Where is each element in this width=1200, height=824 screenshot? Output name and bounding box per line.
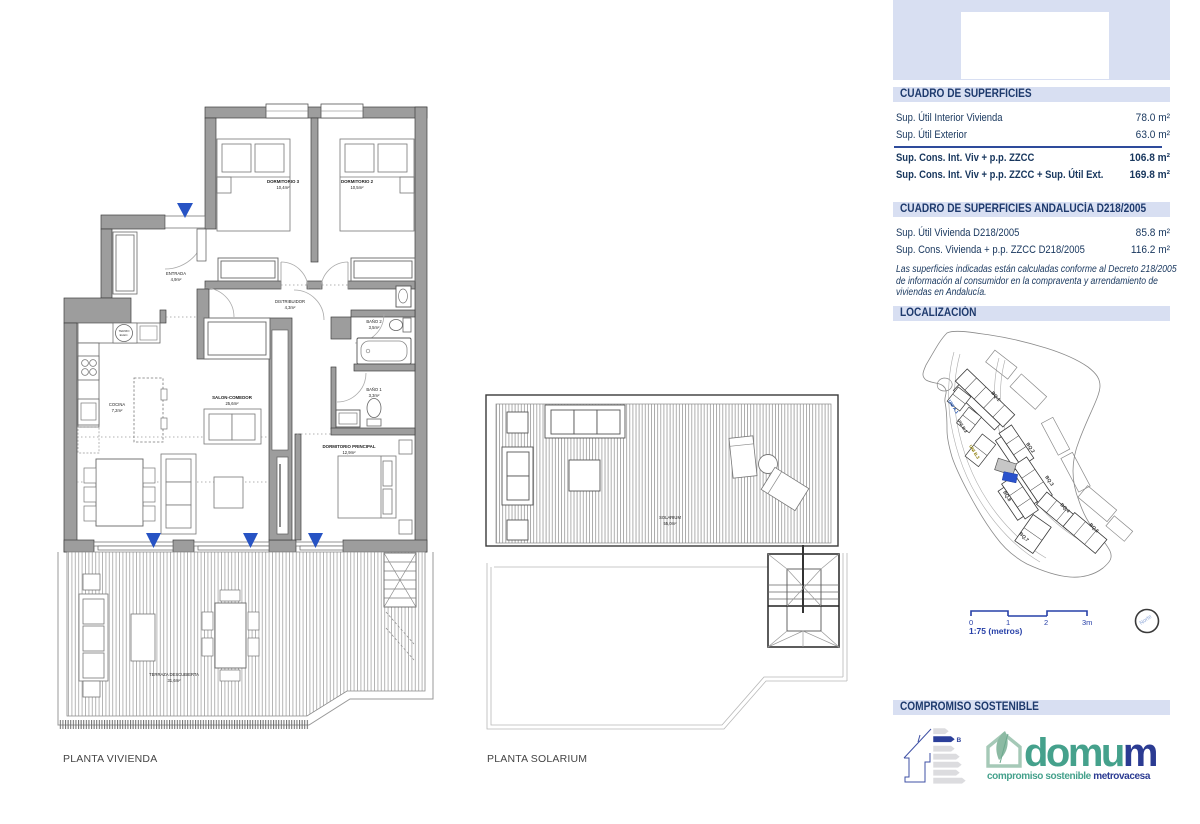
svg-text:10,4m²: 10,4m² — [276, 185, 290, 190]
svg-text:DISTRIBUIDOR: DISTRIBUIDOR — [275, 299, 305, 304]
svg-text:compromiso sostenible metrovac: compromiso sostenible metrovacesa — [987, 771, 1151, 782]
svg-text:4,3m²: 4,3m² — [285, 305, 296, 310]
svg-text:4,9m²: 4,9m² — [171, 277, 182, 282]
svg-text:BAÑO 1: BAÑO 1 — [366, 387, 382, 392]
svg-text:10,5m²: 10,5m² — [350, 185, 364, 190]
svg-text:12,9m²: 12,9m² — [342, 450, 356, 455]
svg-text:SOLARIUM: SOLARIUM — [659, 515, 681, 520]
svg-text:TERRAZA DESCUBIERTA: TERRAZA DESCUBIERTA — [149, 672, 199, 677]
svg-text:25,6m²: 25,6m² — [225, 401, 239, 406]
svg-text:31,6m²: 31,6m² — [167, 678, 181, 683]
svg-text:ENTRADA: ENTRADA — [166, 271, 186, 276]
svg-text:55,0m²: 55,0m² — [663, 521, 677, 526]
svg-text:Norte: Norte — [1139, 614, 1153, 627]
svg-text:2: 2 — [1044, 618, 1048, 627]
svg-text:B: B — [957, 737, 962, 744]
svg-text:DORMITORIO 3: DORMITORIO 3 — [267, 179, 300, 184]
svg-text:DORMITORIO 2: DORMITORIO 2 — [341, 179, 374, 184]
svg-text:3,3m²: 3,3m² — [369, 393, 380, 398]
svg-text:7,2m²: 7,2m² — [112, 408, 123, 413]
svg-text:SALON-COMEDOR: SALON-COMEDOR — [212, 395, 253, 400]
svg-text:domum: domum — [1024, 731, 1157, 775]
svg-text:COCINA: COCINA — [109, 402, 125, 407]
svg-text:BAÑO 2: BAÑO 2 — [366, 319, 382, 324]
svg-text:ELEC.: ELEC. — [120, 333, 129, 337]
svg-text:DORMITORIO PRINCIPAL: DORMITORIO PRINCIPAL — [322, 444, 375, 449]
svg-text:1:75 (metros): 1:75 (metros) — [969, 626, 1023, 636]
svg-text:3m: 3m — [1082, 618, 1092, 627]
svg-text:3,5m²: 3,5m² — [369, 325, 380, 330]
